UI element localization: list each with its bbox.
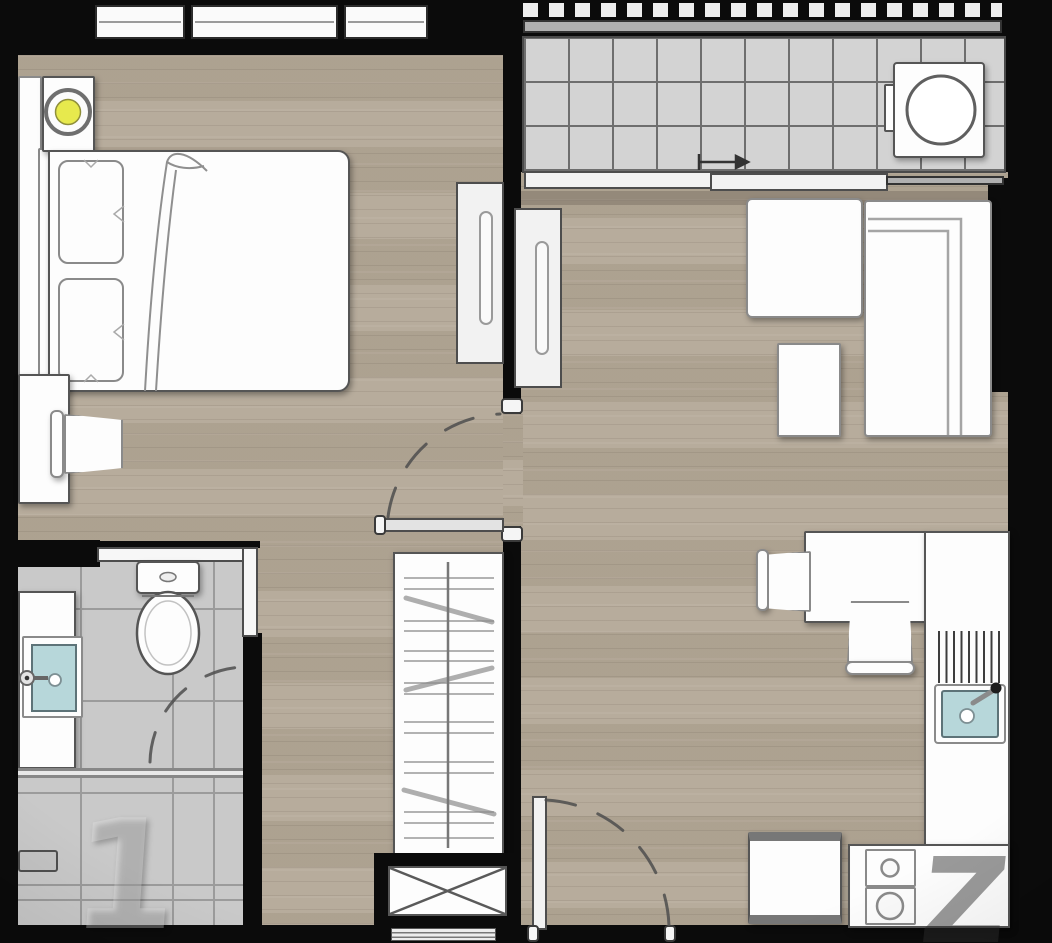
balcony-sliding-door-panel [710,173,888,191]
toilet-tank [136,561,200,594]
entrance-door-panel [532,796,547,930]
bedroom-door-cap [374,515,386,535]
nightstand [42,76,95,152]
washing-machine [893,62,985,158]
bathroom-sink-basin [31,644,77,712]
kitchen-sink-basin [941,690,999,738]
dining-chair-back [845,661,915,675]
bedroom-door-panel [382,518,504,532]
window-frame-line [195,21,334,23]
balcony-railing [523,3,1002,17]
floor-plan: 1 Z [0,0,1052,943]
armchair [746,198,863,318]
wall-cap [501,398,523,414]
window-pane [191,5,338,39]
desk-chair-back [50,410,64,478]
pillow [58,160,124,264]
right-column [988,178,1052,392]
dish-rack [938,631,1002,683]
dining-chair-seat [767,551,811,612]
balcony-fixed-sill [886,176,1004,185]
left-wall [0,0,18,943]
side-table [777,343,841,437]
bathroom-door-pocket [242,547,258,637]
dining-chair-seat [847,601,913,663]
window-pane [344,5,428,39]
stove-burner-plate [865,887,916,925]
bathroom-top-wall [0,540,100,567]
wall-cap [501,526,523,542]
shaft-vent-grille [391,928,496,941]
entrance-door-jamb [527,925,539,942]
entrance-door-jamb [664,925,676,942]
bathroom-pocket-door [97,547,258,562]
window-frame-line [99,21,181,23]
sofa [864,200,992,437]
stove-burner-plate [865,849,916,887]
window-pane [95,5,185,39]
shower-partition [18,768,243,778]
shower-head [18,850,58,872]
bedroom-doorway-floor [503,414,523,526]
center-wall-lower [503,540,521,860]
right-wall [1008,0,1052,943]
living-sliding-panel [514,208,562,388]
refrigerator [748,832,842,924]
balcony-sliding-door-panel [524,171,712,189]
wardrobe [393,552,504,857]
pillow [58,278,124,382]
service-shaft-inner [388,866,507,916]
washing-machine-hinge [884,84,895,132]
bathroom-right-wall [243,633,262,928]
bedroom-sliding-panel [456,182,504,364]
balcony-railing-band [523,20,1002,33]
desk-chair-seat [64,414,123,474]
window-frame-line [348,21,424,23]
